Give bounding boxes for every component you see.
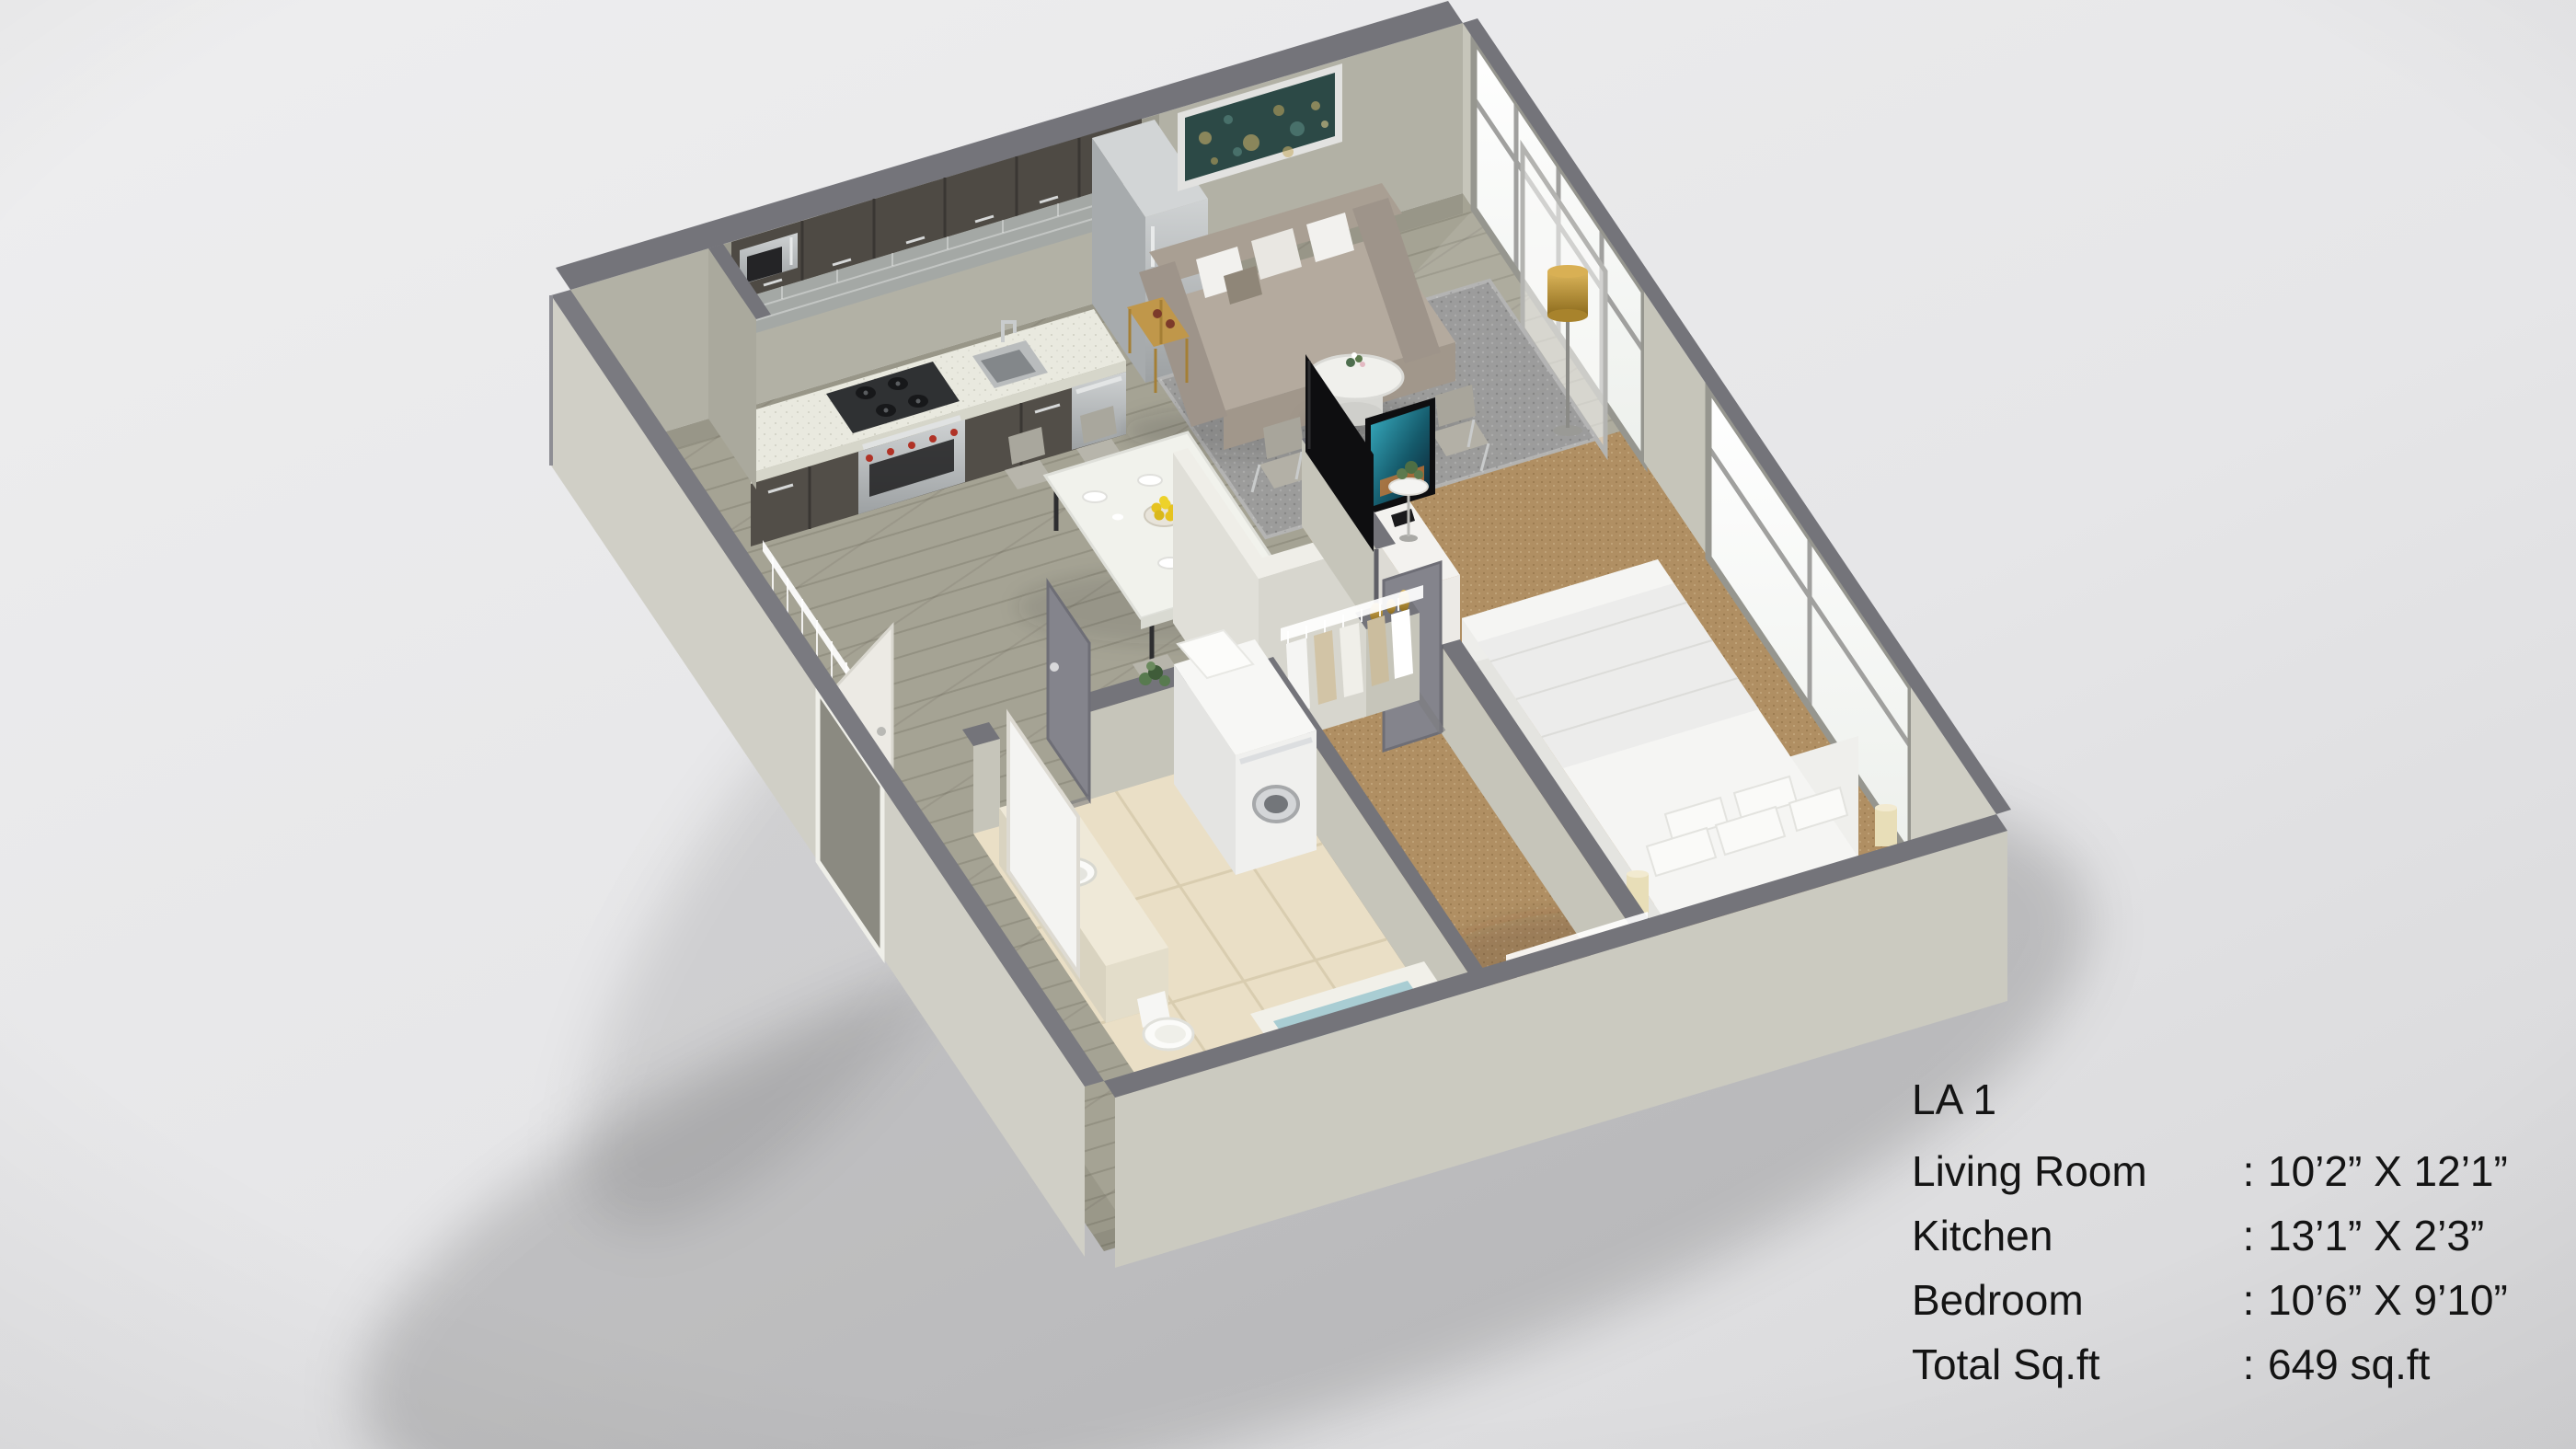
floorplan-legend: LA 1 Living Room : 10’2” X 12’1” Kitchen… xyxy=(1912,1067,2547,1397)
floorplan-scene: LA 1 Living Room : 10’2” X 12’1” Kitchen… xyxy=(0,0,2576,1449)
room-label: Kitchen xyxy=(1912,1203,2229,1268)
separator: : xyxy=(2229,1139,2268,1203)
legend-row-total-sqft: Total Sq.ft : 649 sq.ft xyxy=(1912,1332,2547,1397)
room-label: Bedroom xyxy=(1912,1268,2229,1332)
room-dimensions: 10’2” X 12’1” xyxy=(2268,1139,2547,1203)
room-dimensions: 649 sq.ft xyxy=(2268,1332,2547,1397)
room-label: Living Room xyxy=(1912,1139,2229,1203)
legend-row-bedroom: Bedroom : 10’6” X 9’10” xyxy=(1912,1268,2547,1332)
legend-row-kitchen: Kitchen : 13’1” X 2’3” xyxy=(1912,1203,2547,1268)
separator: : xyxy=(2229,1203,2268,1268)
legend-row-living-room: Living Room : 10’2” X 12’1” xyxy=(1912,1139,2547,1203)
room-dimensions: 13’1” X 2’3” xyxy=(2268,1203,2547,1268)
room-dimensions: 10’6” X 9’10” xyxy=(2268,1268,2547,1332)
unit-name: LA 1 xyxy=(1912,1067,2547,1132)
separator: : xyxy=(2229,1332,2268,1397)
room-label: Total Sq.ft xyxy=(1912,1332,2229,1397)
separator: : xyxy=(2229,1268,2268,1332)
